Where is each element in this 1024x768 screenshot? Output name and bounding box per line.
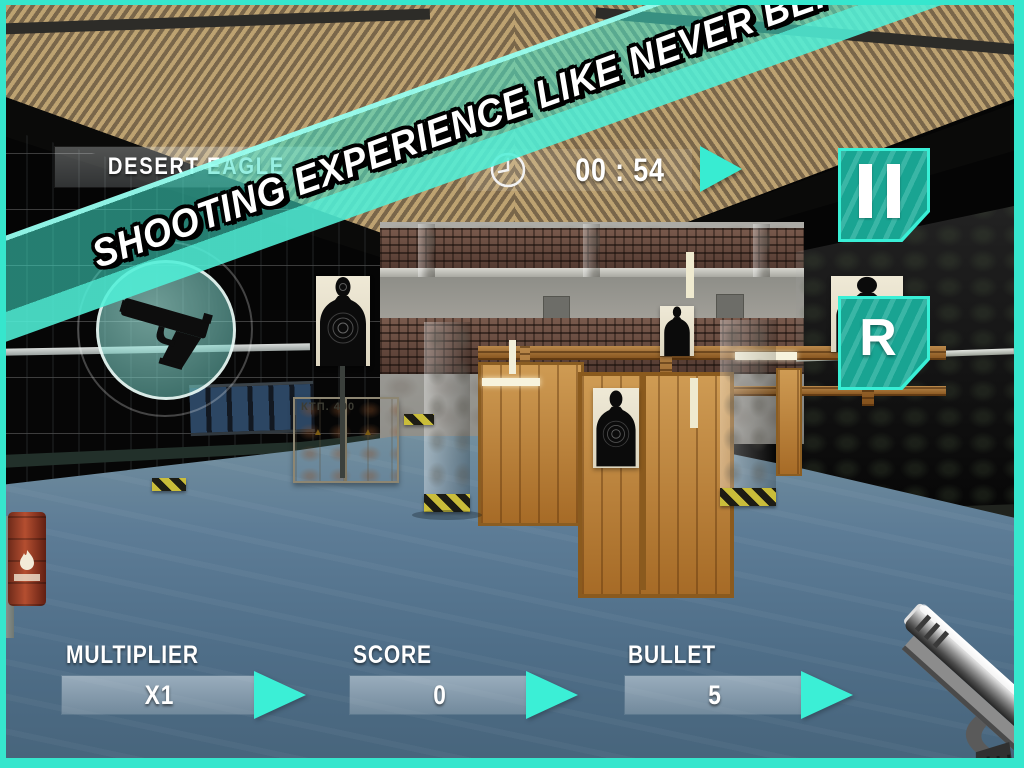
plywood-panel — [478, 362, 584, 526]
multiplier-label: MULTIPLIER — [66, 641, 199, 670]
hazard-block-small — [152, 478, 186, 491]
mezzanine-column — [583, 224, 600, 277]
multiplier-bar: X1 — [62, 676, 258, 714]
bullet-value: 5 — [708, 680, 721, 711]
light-strip-vertical — [686, 252, 694, 298]
target-upper — [660, 306, 694, 356]
target-silhouette — [316, 276, 370, 366]
mezzanine-column — [753, 224, 770, 277]
multiplier-arrow-icon — [254, 671, 306, 719]
score-value: 0 — [433, 680, 446, 711]
concrete-pillar-right — [720, 320, 776, 490]
frame-top — [0, 0, 1024, 5]
light-strip-vertical — [690, 378, 698, 428]
warning-triangle: ▲ — [363, 427, 373, 438]
bullet-label: BULLET — [628, 641, 716, 670]
cabinet-label: КТП. 400 — [301, 401, 355, 413]
light-strip-vertical — [509, 340, 516, 374]
pause-icon — [841, 151, 927, 239]
score-label: SCORE — [353, 641, 432, 670]
warning-triangle: ▲ — [313, 427, 323, 438]
frame-left — [0, 0, 6, 768]
hazard-block-small — [404, 414, 434, 425]
frame-bottom — [0, 758, 1024, 768]
flame-icon — [8, 512, 46, 606]
pillar-hazard-base — [720, 488, 776, 506]
pillar-shadow — [412, 510, 482, 520]
game-screen: КТП. 400 ▲ ▲ — [0, 0, 1024, 768]
wood-panel-right — [776, 368, 802, 476]
target-silhouette — [593, 388, 639, 468]
score-bar: 0 — [350, 676, 530, 714]
multiplier-value: X1 — [145, 680, 174, 711]
timer-value: 00 : 54 — [566, 150, 674, 190]
metal-cabinet: КТП. 400 ▲ ▲ — [293, 397, 399, 483]
target-silhouette — [660, 306, 694, 356]
player-gun — [888, 596, 1024, 768]
frame-right — [1014, 0, 1024, 768]
score-arrow-icon — [526, 671, 578, 719]
target-left — [316, 276, 370, 366]
target-center — [593, 388, 639, 468]
crate-frame — [640, 372, 646, 590]
mezzanine-column — [418, 224, 435, 277]
red-barrel — [8, 512, 46, 606]
play-arrow-icon[interactable] — [700, 146, 742, 192]
concrete-pillar-center — [424, 322, 470, 496]
light-strip — [482, 378, 540, 386]
bullet-arrow-icon — [801, 671, 853, 719]
bullet-bar: 5 — [625, 676, 805, 714]
back-door — [716, 294, 744, 321]
target-pole — [340, 366, 345, 478]
reload-label: R — [859, 308, 897, 368]
